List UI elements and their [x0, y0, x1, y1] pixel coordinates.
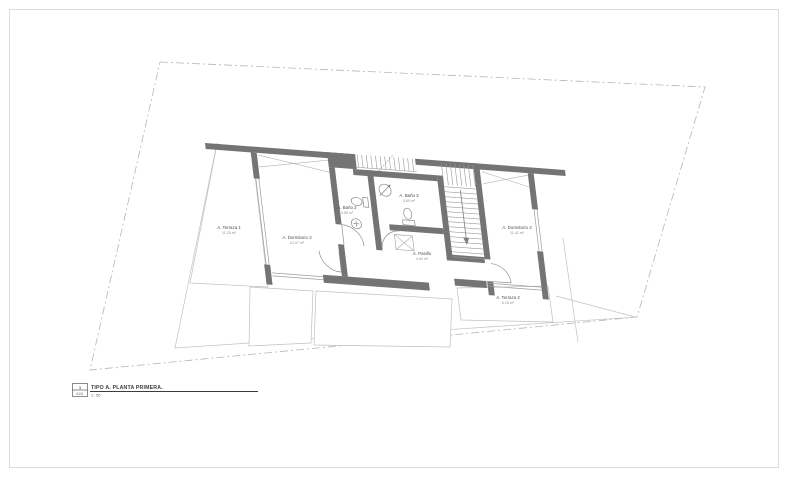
room-area-dormitorio-3: 11.42 m²	[510, 231, 525, 235]
sheet-border	[10, 10, 779, 468]
toilet-tank-icon	[403, 220, 416, 226]
toilet-tank-icon	[363, 197, 369, 207]
room-area-bano-3: 3.60 m²	[403, 199, 416, 203]
drawing-sheet: A. Terraza 1 11.25 m² A. Dormitorio 2 12…	[0, 0, 788, 477]
patio-left-outline	[249, 287, 313, 346]
view-number: 1	[79, 385, 82, 390]
room-label-bano-3: A. Baño 3	[399, 193, 419, 198]
floor-plan-canvas: A. Terraza 1 11.25 m² A. Dormitorio 2 12…	[0, 0, 788, 477]
room-label-dormitorio-3: A. Dormitorio 3	[502, 225, 532, 230]
view-scale: 1 : 50	[91, 394, 101, 398]
view-title: TIPO A. PLANTA PRIMERA.	[91, 385, 163, 391]
room-label-pasillo: A. Pasillo	[413, 251, 432, 256]
room-area-pasillo: 4.40 m²	[416, 257, 429, 261]
room-label-bano-2: A. Baño 2	[337, 205, 357, 210]
room-area-bano-2: 3.55 m²	[341, 211, 354, 215]
room-area-terraza-2: 5.15 m²	[502, 301, 515, 305]
room-label-terraza-2: A. Terraza 2	[496, 295, 520, 300]
room-label-dormitorio-2: A. Dormitorio 2	[282, 235, 312, 240]
room-area-terraza-1: 11.25 m²	[222, 231, 237, 235]
room-label-terraza-1: A. Terraza 1	[217, 225, 241, 230]
patio-center-outline	[314, 291, 452, 347]
room-area-dormitorio-2: 12.07 m²	[290, 241, 305, 245]
sheet-ref: A101	[76, 392, 84, 396]
